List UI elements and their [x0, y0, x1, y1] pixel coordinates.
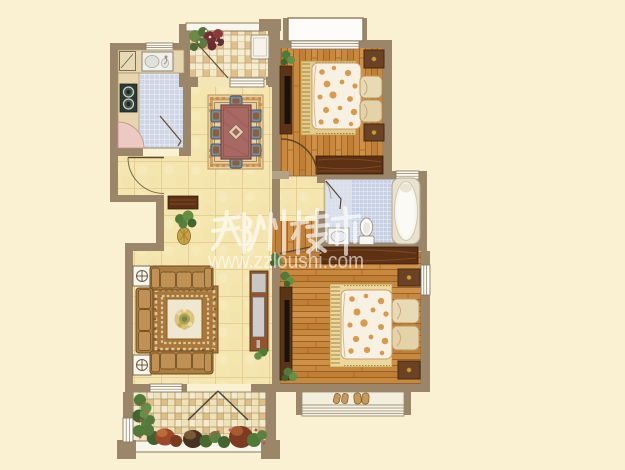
svg-text:www.zzloushi.com: www.zzloushi.com — [207, 248, 364, 273]
